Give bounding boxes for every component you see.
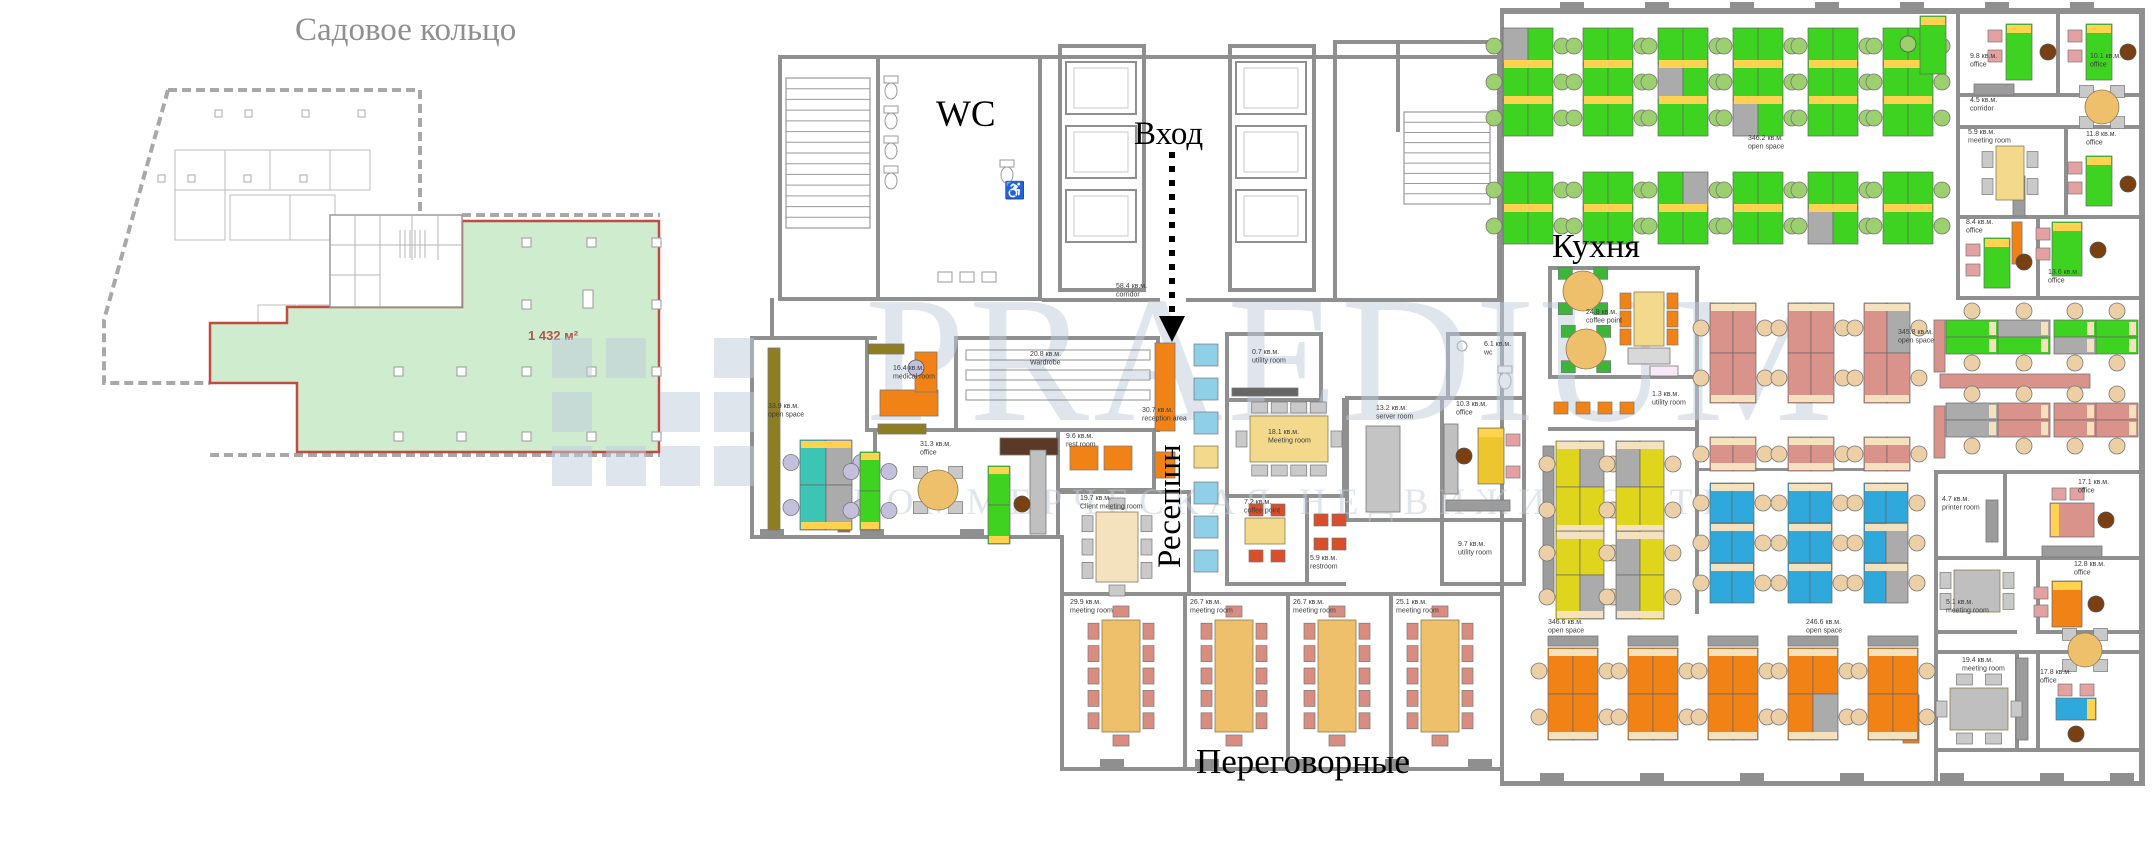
chair [1314,514,1328,526]
room-label: 12.8 кв.м. [2074,561,2105,568]
room-label: 30.7 кв.м. [1142,407,1173,414]
desk-cluster [1691,648,1775,740]
chair [1599,589,1615,605]
room-label: coffee point [1586,318,1622,325]
office-desk [2056,698,2096,720]
room-label: 13.6 кв.м. [2048,269,2079,276]
chair [1934,74,1950,90]
column [860,529,884,539]
elevator-car [1066,62,1136,114]
room-label: 7.2 кв.м. [1244,499,1271,506]
room-label: office [2078,488,2095,495]
chair [2036,228,2050,240]
furniture [1940,374,2090,388]
chair [1641,218,1657,234]
desk-panel [1711,484,1753,491]
chair [1691,709,1707,725]
wall [1934,470,1938,782]
chair [2120,44,2136,60]
chair [1014,496,1030,512]
chair [1919,709,1935,725]
desk-cluster [1946,386,2050,454]
column [1730,2,1754,10]
column [1540,773,1564,782]
furniture [2016,658,2028,740]
chair [1964,303,1980,319]
desk-panel [1789,395,1833,402]
chair [1486,74,1502,90]
wall [1934,748,2143,752]
column [1815,2,1839,10]
chair [1771,535,1787,551]
chair [1964,386,1980,402]
chair [1847,535,1863,551]
desk-panel [2007,25,2031,33]
desk [1908,208,1933,244]
chair [1665,456,1681,472]
furniture [868,344,904,354]
table-group [1407,606,1473,746]
chair [1982,179,1993,195]
desk [1658,28,1683,64]
desk-panel [1617,532,1663,539]
room-label: medical room [893,374,935,381]
chair [1310,402,1326,413]
mini-column [215,110,222,117]
column [2070,2,2094,10]
meeting-rooms-label: Переговорные [1196,744,1410,779]
desk-panel [801,441,851,448]
desk-cluster [2054,386,2138,454]
table [1950,688,2008,730]
office-desk [2052,222,2082,276]
chair [1716,110,1732,126]
table [918,470,958,510]
column [1840,773,1864,782]
desk [1733,172,1758,208]
desk [1503,100,1528,136]
desk [1833,100,1858,136]
desk [1658,64,1683,100]
chair [1791,74,1807,90]
room-label: meeting room [1946,608,1989,615]
chair [1432,735,1448,746]
round-table-group [2062,628,2107,671]
wall [1183,592,1187,771]
desk [1608,100,1633,136]
table-group [1620,292,1678,346]
desk-panel [1789,732,1837,739]
mini-room [330,150,370,190]
room-label: 19.4 кв.м. [1962,657,1993,664]
chair [1957,674,1973,685]
building-outline [168,90,420,215]
chair [1304,646,1315,662]
mini-column [587,238,596,247]
chair [1620,293,1631,309]
desk-panel [1865,463,1909,470]
chair [1359,646,1370,662]
room-label: 16.4 кв.м. [893,365,924,372]
office-desk [1984,238,2010,288]
column [1645,2,1669,10]
desk-cluster [988,466,1010,544]
room-label: 19.7 кв.м. [1080,495,1111,502]
chair [1359,668,1370,684]
chair [1088,713,1099,729]
chair [1940,573,1951,589]
desk [1758,64,1783,100]
desk-panel [1557,442,1603,449]
wall [2003,470,2007,560]
chair [1359,623,1370,639]
desk-panel [1504,60,1552,68]
desk [1883,64,1908,100]
desk-panel [1617,442,1663,449]
wall [1440,518,1444,586]
chair [881,464,897,480]
desk-panel [1711,564,1753,571]
chair [1141,562,1152,578]
chair [1964,355,1980,371]
room-label: 8.4 кв.м. [1966,219,1993,226]
desk-panel [1865,564,1907,571]
chair [1771,370,1787,386]
chair [783,500,799,516]
chair [1194,344,1218,366]
desk-cluster [1531,648,1615,740]
chair [1986,733,2002,744]
kitchen-label: Кухня [1552,230,1640,264]
chair [1641,182,1657,198]
column [1468,759,1492,768]
room-label: 10.1 кв.м. [2090,53,2121,60]
furniture [1446,500,1510,511]
desk-panel [989,536,1009,543]
room-label: office [1970,62,1987,69]
chair [1566,110,1582,126]
desk-panel [1711,304,1755,311]
chair [1693,320,1709,336]
chair [1143,690,1154,706]
desk [1758,100,1783,136]
furniture [1030,450,1046,534]
chair [1757,320,1773,336]
desk-cluster [1847,437,1927,471]
chair [1620,329,1631,345]
desk-panel [1629,732,1677,739]
room-label: 26.7 кв.м. [1293,599,1324,606]
chair [2003,594,2014,610]
chair [1462,668,1473,684]
desk [1658,208,1683,244]
watermark-logo-square [552,338,592,378]
table [1194,446,1218,468]
room-label: 33.9 кв.м. [768,403,799,410]
chair [1964,438,1980,454]
chair [2109,438,2125,454]
desk-panel [1711,463,1755,470]
mini-column [652,300,661,309]
mini-column [244,175,251,182]
chair [1693,495,1709,511]
room-label: 26.7 кв.м. [1190,599,1221,606]
chair [1256,668,1267,684]
room-label: 5.1 кв.м. [1946,599,1973,606]
chair [1771,709,1787,725]
desk-panel [2129,339,2136,352]
desk [1528,28,1553,64]
chair [1599,545,1615,561]
room-label: 20.8 кв.м. [1030,351,1061,358]
furniture [1232,388,1298,396]
desk [1608,64,1633,100]
watermark-logo-square [606,338,646,378]
desk [1908,100,1933,136]
desk-panel [2129,422,2136,435]
chair [1755,535,1771,551]
desk-panel [2053,223,2081,231]
watermark-logo-square [660,446,700,486]
chair [1201,690,1212,706]
room-label: office [2040,678,2057,685]
room-label: server room [1376,414,1414,421]
desk-panel [1865,438,1909,445]
desk-panel [1809,204,1857,212]
desk [1658,172,1683,208]
desk [1733,64,1758,100]
chair [1082,562,1093,578]
room-label: 5.9 кв.м. [1310,555,1337,562]
furniture [1548,636,1598,646]
desk-cluster [1641,172,1725,244]
desk [1808,172,1833,208]
chair [1256,713,1267,729]
wall [1060,592,1504,596]
room-label: 6.1 кв.м. [1484,341,1511,348]
desk-cluster [1641,28,1725,136]
chair [2067,303,2083,319]
furniture [878,424,926,434]
desk-panel [1584,60,1632,68]
chair [1667,329,1678,345]
chair [1082,516,1093,532]
column [1560,2,1584,10]
room-label: open space [768,412,804,419]
desk-panel [2087,699,2095,719]
desk-panel [1884,204,1932,212]
wall [1934,630,2017,634]
room-label: 9.8 кв.м. [1970,53,1997,60]
chair [1833,575,1849,591]
chair [1456,448,1472,464]
mini-column [394,367,403,376]
chair [2068,30,2082,42]
column [1940,773,1964,782]
elevator-car [1066,190,1136,242]
table [1563,271,1603,311]
chair [1771,320,1787,336]
room-label: 58.4 кв.м. [1116,283,1147,290]
desk-panel [2041,322,2048,335]
desk [1808,64,1833,100]
desk-panel [1709,732,1757,739]
chair [1304,690,1315,706]
chair [1088,668,1099,684]
wall [1333,40,1502,44]
room-label: 5.9 кв.м. [1968,129,1995,136]
chair [1936,701,1947,717]
room-label: office [2048,278,2065,285]
watermark-logo-square [552,392,592,432]
desk-panel [1557,532,1603,539]
desk-panel [2129,405,2136,418]
watermark-logo-square [714,392,754,432]
chair [1667,311,1678,327]
chair [2067,386,2083,402]
desk-cluster [1847,483,1925,603]
chair [2016,386,2032,402]
room-label: Client meeting room [1080,504,1143,511]
chair [1462,623,1473,639]
wall [770,298,774,340]
chair [783,455,799,471]
chair [1957,733,1973,744]
room-label: Wardrobe [1030,360,1061,367]
stairs [1404,112,1490,204]
furniture [1934,406,1945,458]
chair [1911,446,1927,462]
watermark-brand-text: PRAEDIUM [865,260,1837,459]
chair [1486,182,1502,198]
chair [2068,162,2082,174]
desk [1608,28,1633,64]
desk-panel [1734,96,1782,104]
desk-panel [1504,96,1552,104]
chair [1271,402,1287,413]
chair [1462,646,1473,662]
desk-cluster [1847,303,1927,403]
office-desk [1478,428,1504,484]
chair [1310,465,1326,476]
chair [1304,623,1315,639]
wall [1312,44,1316,292]
desk-panel [2053,582,2081,590]
desk [1833,28,1858,64]
chair [1986,674,2002,685]
desk-panel [1884,96,1932,104]
column [1900,2,1924,10]
chair [1599,456,1615,472]
wall [1956,8,1960,298]
room-label: restroom [1310,564,1338,571]
furniture [1868,636,1918,646]
office-desk [1920,16,1946,74]
desk-cluster [1716,172,1800,244]
mini-room [225,150,270,190]
desk-panel [1584,96,1632,104]
chair [1407,690,1418,706]
desk [1808,100,1833,136]
desk-panel [1989,422,1996,435]
watermark-logo-square [660,392,700,432]
table [2068,633,2102,667]
desk [1733,28,1758,64]
wall [1396,40,1400,132]
desk [1908,172,1933,208]
chair [1851,709,1867,725]
chair [1304,668,1315,684]
desk-panel [1789,484,1831,491]
wall [1440,582,1526,586]
chair [1486,110,1502,126]
chair [1919,663,1935,679]
mini-column [652,238,661,247]
room-label: corridor [1970,106,1994,113]
desk-cluster [1566,28,1650,136]
wall [2064,125,2068,217]
desk-panel [1985,239,2009,247]
toilet-icon [884,76,898,83]
chair [1833,535,1849,551]
watermark-logo-square [714,338,754,378]
desk [1683,172,1708,208]
elevator-car [1236,190,1306,242]
chair [2016,254,2032,270]
mini-shaft [583,290,593,308]
chair [1201,713,1212,729]
room-label: printer room [1942,505,1980,512]
chair [1070,446,1098,470]
room-label: reception area [1142,416,1187,423]
chair [1249,550,1263,562]
chair [1256,690,1267,706]
mini-column [358,110,365,117]
chair [1143,713,1154,729]
room-label: 345.8 кв.м. [1898,329,1933,336]
round-table-group [1561,325,1610,372]
desk [1503,172,1528,208]
desk-panel [1659,60,1707,68]
chair [1755,495,1771,511]
chair [1716,38,1732,54]
wall [778,55,1500,59]
room-label: utility room [1252,358,1286,365]
street-title: Садовое кольцо [295,14,516,47]
desk-panel [801,522,851,529]
chair [1988,30,2002,42]
room-label: Meeting room [1268,438,1311,445]
mini-column [522,432,531,441]
desk-panel [1711,395,1755,402]
chair [2068,50,2082,62]
desk [1833,172,1858,208]
column [1740,773,1764,782]
wall [1058,44,1062,292]
chair [1847,320,1863,336]
mini-column [302,110,309,117]
chair [1716,218,1732,234]
chair [1486,218,1502,234]
room-label: 18.1 кв.м. [1268,429,1299,436]
chair [1332,514,1346,526]
chair [1141,539,1152,555]
wall [1956,296,2143,300]
chair [1576,402,1590,414]
chair [1791,218,1807,234]
table [1566,329,1606,369]
mini-column [652,432,661,441]
